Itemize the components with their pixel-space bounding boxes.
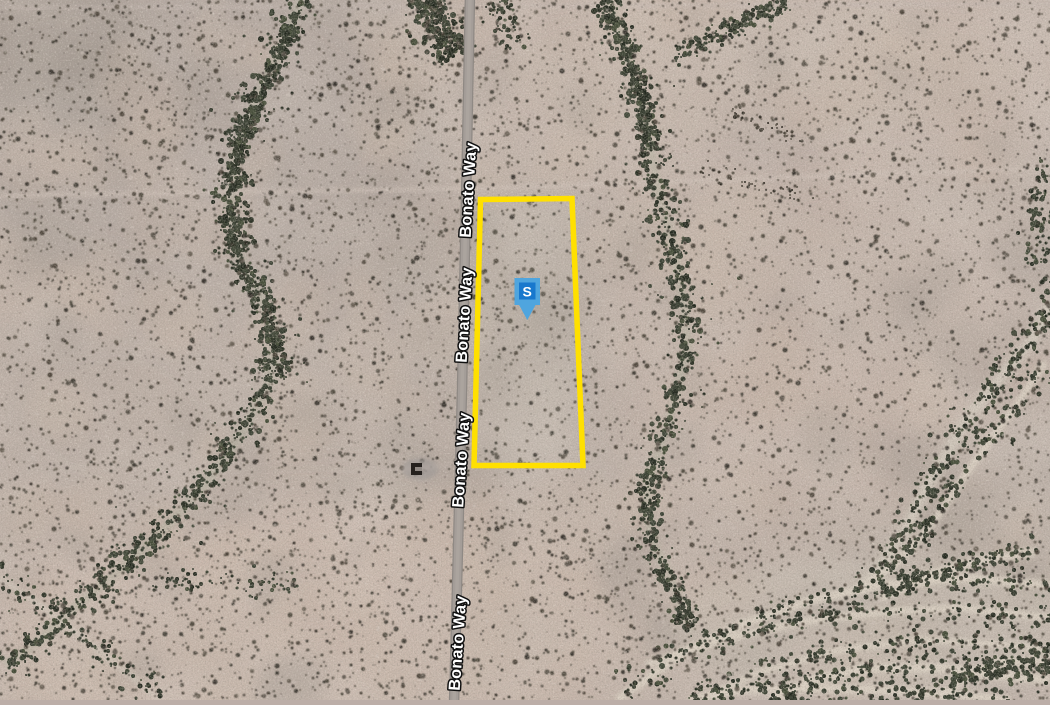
svg-text:S: S <box>523 284 532 300</box>
